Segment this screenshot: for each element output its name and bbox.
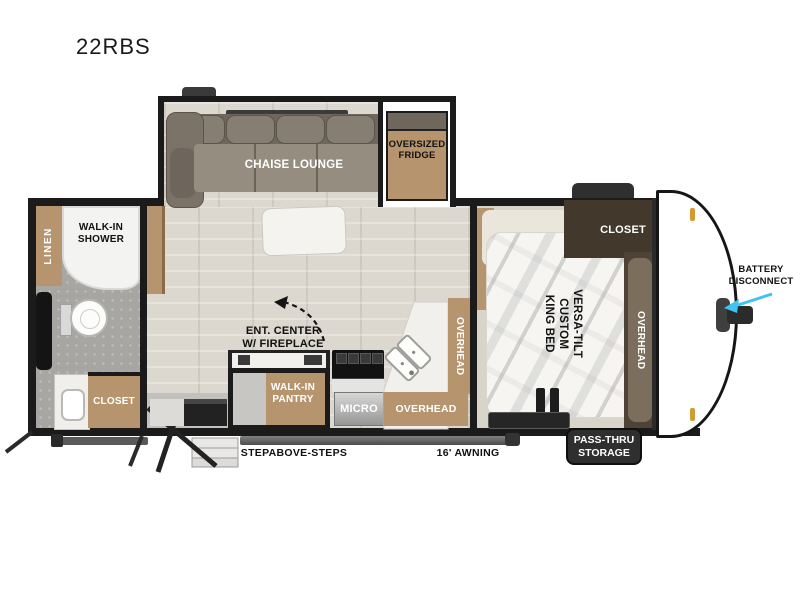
floorplan-title: 22RBS xyxy=(76,34,151,60)
fridge-label: OVERSIZED FRIDGE xyxy=(388,139,446,161)
microwave: MICRO xyxy=(334,392,384,426)
bath-sink xyxy=(61,389,85,421)
toilet-bowl xyxy=(80,309,100,329)
awning-bar-endcap xyxy=(505,433,520,446)
linen-cabinet: LINEN xyxy=(36,206,62,286)
king-bed-label: VERSA-TILT CUSTOM KING BED xyxy=(541,290,582,359)
awning-label: 16' AWNING xyxy=(428,447,508,459)
bath-closet: CLOSET xyxy=(88,372,140,428)
fridge: OVERSIZED FRIDGE xyxy=(386,111,448,201)
wardrobe xyxy=(147,206,165,294)
stove xyxy=(332,350,384,392)
entry-landing xyxy=(150,399,184,426)
bath-sink-counter xyxy=(54,374,90,430)
rear-bumper-cap xyxy=(51,434,63,447)
walk-in-shower xyxy=(62,206,140,290)
wall-bathroom xyxy=(140,206,147,428)
kitchen-overhead-cabinet: OVERHEAD xyxy=(384,392,468,426)
rv-floorplan: 22RBS CHAISE LOUNGE OVERSIZED FRIDGE LIN… xyxy=(0,0,800,600)
kitchen-overhead-label: OVERHEAD xyxy=(395,403,456,415)
linen-label: LINEN xyxy=(43,227,55,265)
tv-swing-arrow xyxy=(272,293,328,345)
battery-disconnect-label: BATTERY DISCONNECT xyxy=(722,264,800,288)
kitchen-overhead-side-label: OVERHEAD xyxy=(453,317,465,375)
slideout-room: CHAISE LOUNGE OVERSIZED FRIDGE xyxy=(158,96,456,207)
entry-step-box xyxy=(184,399,227,426)
awning-bar xyxy=(240,436,512,445)
sofa-cushion xyxy=(326,115,375,144)
passthru-storage-badge: PASS-THRU STORAGE xyxy=(566,428,642,465)
steps-label: STEPABOVE-STEPS xyxy=(238,447,350,459)
clearance-light xyxy=(690,208,695,221)
stove-front xyxy=(332,378,384,392)
battery-disconnect-arrow xyxy=(722,290,776,314)
tv-bracket xyxy=(304,355,322,365)
coffee-table xyxy=(261,206,347,257)
wall-top-left xyxy=(28,198,164,206)
clearance-light xyxy=(690,408,695,421)
micro-label: MICRO xyxy=(340,403,378,416)
stove-burner xyxy=(336,353,347,364)
king-bed-label-wrap: VERSA-TILT CUSTOM KING BED xyxy=(486,232,638,416)
shower-label: WALK-IN SHOWER xyxy=(64,222,138,246)
wall-rear xyxy=(28,198,36,436)
rear-stabilizer-jack xyxy=(2,428,38,456)
chaise-lounge-label: CHAISE LOUNGE xyxy=(224,159,364,173)
toilet xyxy=(70,299,108,337)
walk-in-pantry: WALK-IN PANTRY xyxy=(228,368,330,430)
sofa-cushion xyxy=(276,115,325,144)
sofa-cushion xyxy=(226,115,275,144)
bath-closet-label: CLOSET xyxy=(93,396,135,408)
fireplace-insert xyxy=(238,355,250,365)
stove-burner xyxy=(348,353,359,364)
stove-burner xyxy=(360,353,371,364)
fridge-top-panel xyxy=(388,113,446,131)
sofa-arm xyxy=(170,148,196,198)
bath-vanity xyxy=(36,292,52,370)
pantry-label: WALK-IN PANTRY xyxy=(264,382,322,406)
kitchen-overhead-side-cabinet: OVERHEAD xyxy=(448,298,470,394)
